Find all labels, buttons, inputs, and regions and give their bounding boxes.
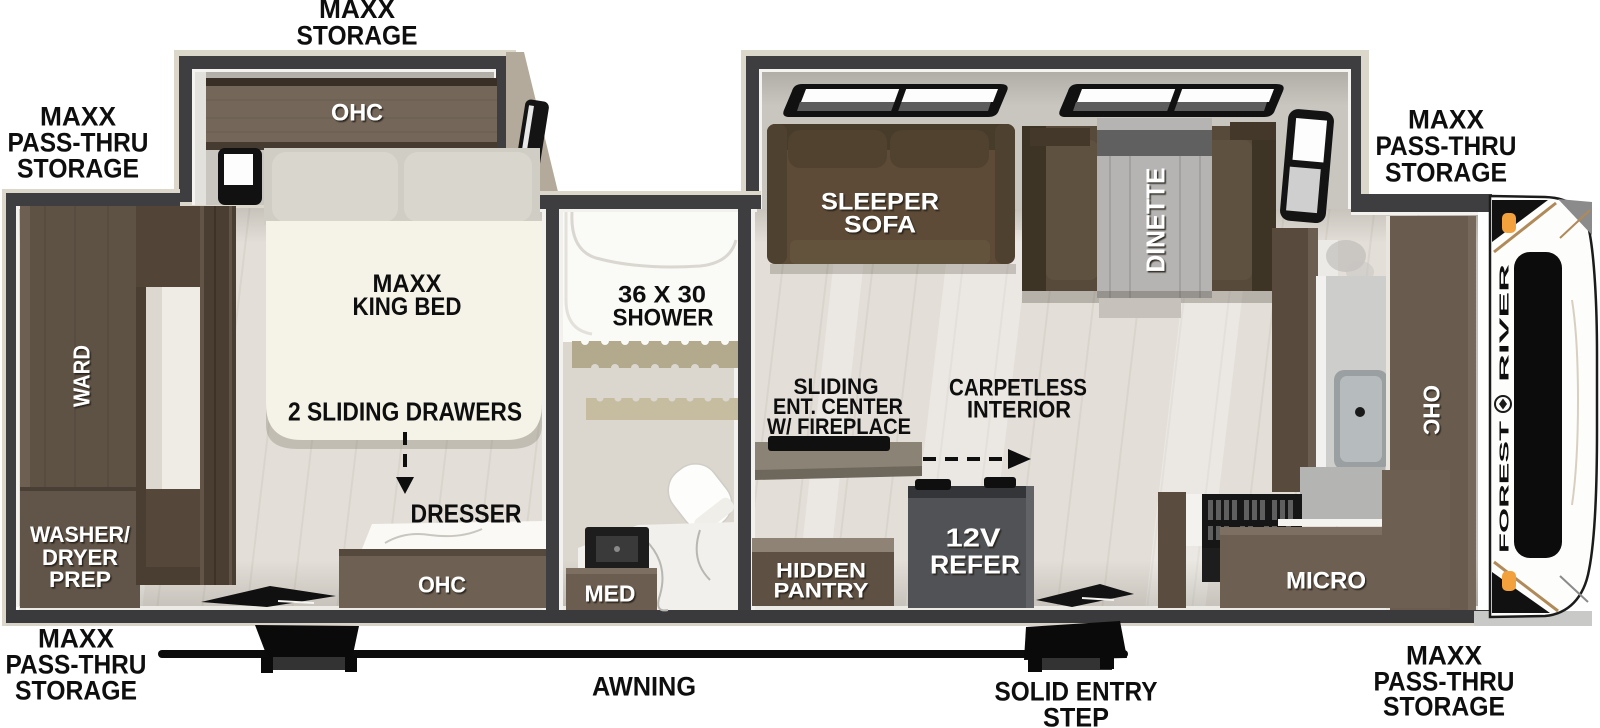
svg-text:MAXX: MAXX [1408, 105, 1484, 135]
svg-text:STORAGE: STORAGE [17, 154, 139, 184]
svg-text:KING BED: KING BED [353, 293, 462, 321]
svg-text:PASS-THRU: PASS-THRU [1376, 131, 1517, 161]
svg-text:DRESSER: DRESSER [411, 498, 522, 528]
svg-text:PANTRY: PANTRY [774, 580, 869, 603]
svg-text:MICRO: MICRO [1286, 568, 1366, 595]
svg-text:SOFA: SOFA [844, 212, 916, 239]
svg-text:STORAGE: STORAGE [15, 676, 137, 706]
svg-text:FOREST: FOREST [1497, 421, 1512, 553]
svg-text:STEP: STEP [1043, 703, 1109, 728]
svg-text:12V: 12V [946, 522, 1002, 552]
svg-text:WARD: WARD [68, 345, 94, 407]
svg-text:SHOWER: SHOWER [613, 305, 714, 332]
svg-text:PREP: PREP [49, 567, 111, 592]
svg-text:MED: MED [585, 580, 636, 606]
svg-text:STORAGE: STORAGE [1383, 692, 1505, 722]
svg-text:RIVER: RIVER [1497, 262, 1512, 382]
svg-text:STORAGE: STORAGE [1385, 158, 1507, 188]
svg-text:OHC: OHC [331, 100, 383, 127]
svg-text:OHC: OHC [418, 571, 466, 597]
svg-text:2 SLIDING DRAWERS: 2 SLIDING DRAWERS [288, 396, 522, 426]
svg-text:W/ FIREPLACE: W/ FIREPLACE [767, 414, 911, 439]
svg-text:DINETTE: DINETTE [1140, 168, 1170, 273]
svg-text:AWNING: AWNING [592, 672, 696, 702]
svg-text:INTERIOR: INTERIOR [967, 397, 1071, 424]
svg-text:REFER: REFER [930, 549, 1020, 579]
svg-text:WASHER/: WASHER/ [30, 522, 130, 547]
svg-text:OHC: OHC [1419, 385, 1445, 435]
svg-text:STORAGE: STORAGE [297, 21, 418, 51]
